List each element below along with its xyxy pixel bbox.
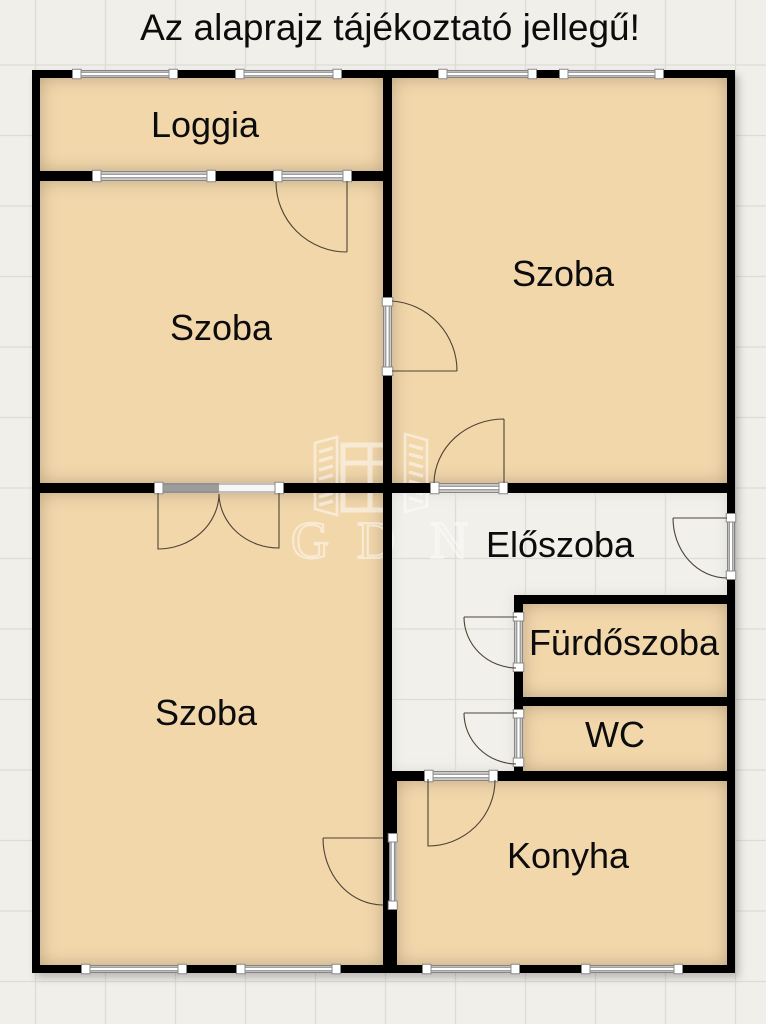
svg-text:WC: WC (585, 714, 645, 755)
svg-text:Szoba: Szoba (170, 307, 273, 348)
svg-text:Konyha: Konyha (507, 835, 630, 876)
svg-text:Fürdőszoba: Fürdőszoba (529, 622, 720, 663)
svg-text:N: N (430, 512, 468, 570)
svg-text:Szoba: Szoba (512, 253, 615, 294)
svg-text:Az alaprajz tájékoztató jelleg: Az alaprajz tájékoztató jellegű! (140, 7, 640, 48)
svg-text:Előszoba: Előszoba (486, 524, 635, 565)
svg-text:Loggia: Loggia (151, 104, 260, 145)
svg-text:G: G (291, 512, 329, 570)
svg-text:Szoba: Szoba (155, 692, 258, 733)
